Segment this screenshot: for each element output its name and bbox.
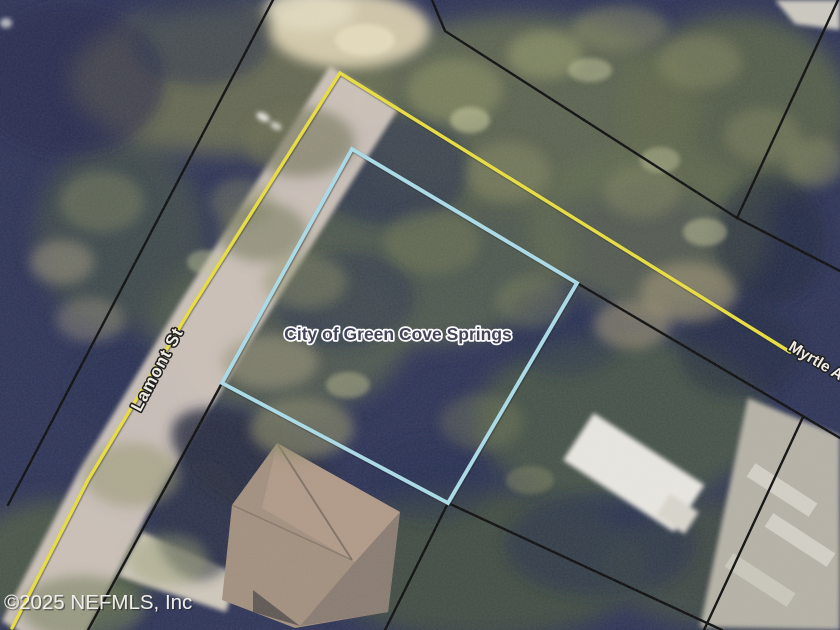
- aerial-parcel-map: City of Green Cove Springs Lamont St Myr…: [0, 0, 840, 630]
- map-canvas: City of Green Cove Springs Lamont St Myr…: [0, 0, 840, 630]
- photo-grain-overlay: [0, 0, 840, 630]
